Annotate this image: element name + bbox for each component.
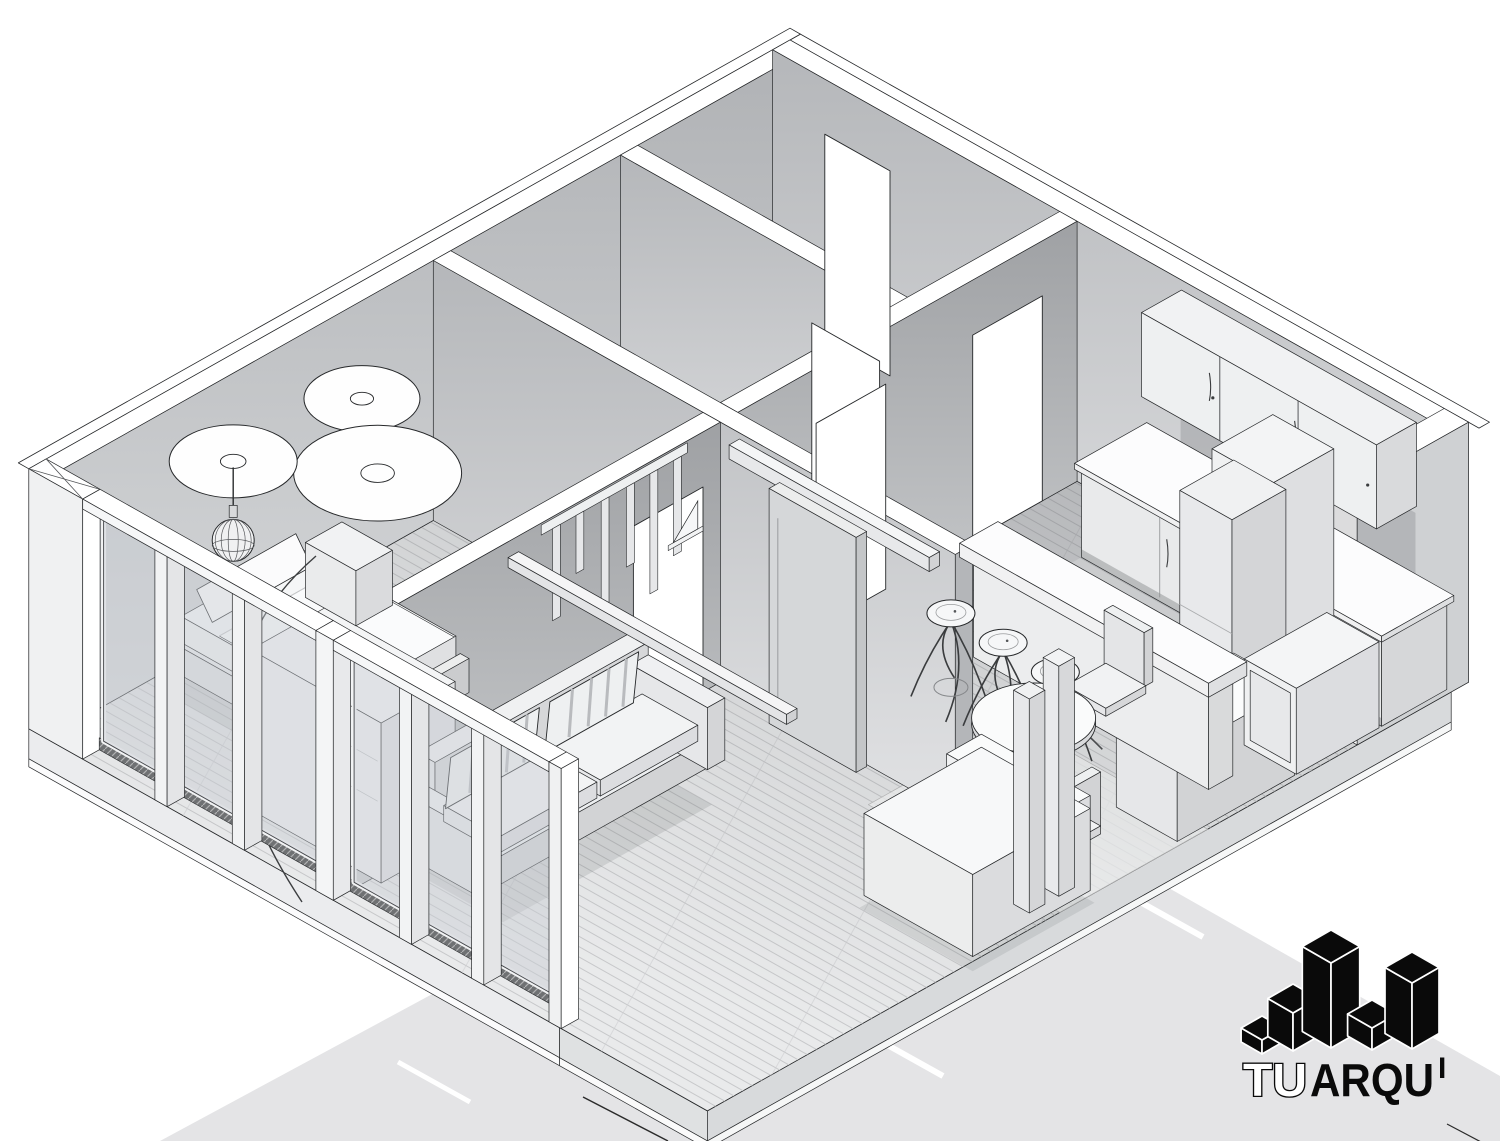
apartment-isometric-view: TU ARQU I xyxy=(0,0,1500,1141)
logo-text-tu: TU xyxy=(1243,1054,1307,1106)
logo-text-arqui: ARQU xyxy=(1310,1054,1434,1106)
rendering-canvas: TU ARQU I xyxy=(0,0,1500,1141)
logo-text-i-tick: I xyxy=(1438,1052,1446,1085)
